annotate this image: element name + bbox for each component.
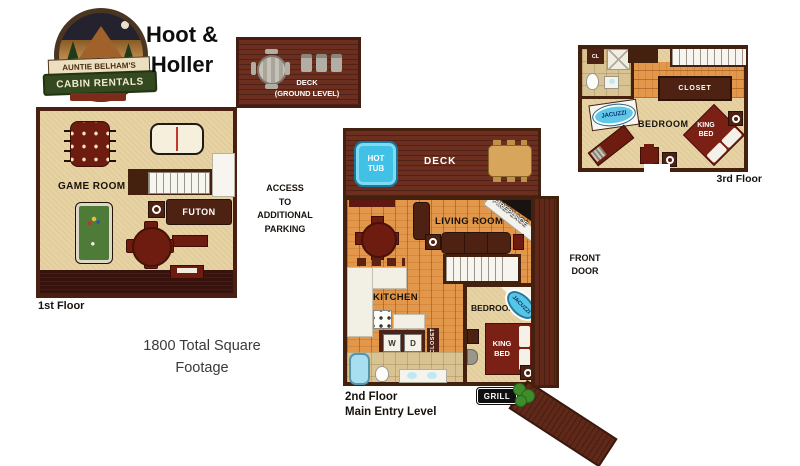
air-hockey-table-icon — [150, 123, 204, 155]
bench-seat — [177, 268, 197, 273]
lounge-chair-icon — [588, 125, 635, 167]
grill-icon: GRILL — [477, 388, 517, 404]
floor2-bedroom: BEDROOM JACUZZI KING BED — [463, 283, 537, 382]
sink-icon — [604, 76, 619, 89]
sink-icon — [427, 372, 437, 379]
foosball-rods-icon — [64, 126, 71, 162]
sink-basin — [609, 79, 615, 84]
chairs-row-icon — [493, 140, 527, 145]
floorplan-page: AUNTIE BELHAM'S CABIN RENTALS Hoot & Hol… — [0, 0, 800, 466]
deck-chair-icon — [331, 54, 342, 72]
toilet-icon — [375, 366, 389, 382]
floor2-jacuzzi-label: JACUZZI — [511, 295, 532, 316]
floor2-stairs-wall — [443, 254, 521, 284]
floor1-caption: 1st Floor — [38, 300, 84, 312]
chair-icon — [285, 62, 290, 75]
bedroom-chair-icon — [467, 349, 478, 365]
deck-dining-table-icon — [488, 145, 532, 177]
logo-ribbon — [70, 93, 126, 101]
table-top — [361, 222, 397, 258]
air-hockey-centerline — [176, 127, 178, 151]
foosball-table-icon — [70, 121, 110, 167]
futon-label: FUTON — [182, 207, 215, 217]
deck-chair-icon — [301, 54, 312, 72]
page-title: Hoot & Holler — [134, 20, 230, 79]
floor3-jacuzzi: JACUZZI — [588, 99, 639, 131]
toilet-icon — [586, 73, 599, 90]
end-table-icon — [513, 234, 524, 250]
floor2-closet: CLOSET — [427, 328, 439, 354]
kitchen-counter — [347, 267, 373, 337]
stairs-landing — [212, 153, 235, 197]
floor3-bedroom-label: BEDROOM — [638, 119, 689, 129]
floor3-plan: CL CLOSET JACUZZI BEDROOM KING BED — [578, 45, 748, 172]
lamp-icon — [429, 238, 437, 246]
dining-table-icon — [359, 220, 395, 256]
shower-icon — [607, 49, 630, 70]
stairs-icon — [670, 49, 746, 67]
kitchen-label: KITCHEN — [373, 292, 418, 303]
foosball-rods-icon — [109, 126, 116, 162]
floor3-caption: 3rd Floor — [700, 173, 762, 185]
bushes-icon — [513, 383, 539, 409]
floor2-deck-label: DECK — [424, 156, 456, 167]
deck-chair-icon — [316, 54, 327, 72]
floor3-jacuzzi-label: JACUZZI — [601, 110, 627, 119]
stairs-landing — [508, 257, 518, 281]
lamp-icon — [152, 205, 161, 214]
lamp-table-icon — [148, 201, 165, 218]
chair-icon — [251, 62, 256, 75]
bush — [515, 395, 527, 407]
washer-icon: W — [383, 334, 401, 352]
dryer-icon: D — [404, 334, 422, 352]
floor3-closet-label: CLOSET — [678, 85, 711, 92]
bar-stools-icon — [357, 258, 405, 266]
pillow-icon — [706, 142, 727, 163]
stairs-icon — [148, 172, 210, 194]
hot-tub-icon: HOT TUB — [354, 141, 398, 187]
grill-label: GRILL — [484, 392, 511, 401]
chair-icon — [265, 49, 278, 54]
floor3-closet: CLOSET — [658, 76, 732, 101]
square-footage-note: 1800 Total Square Footage — [118, 336, 286, 380]
moon-icon — [121, 21, 129, 29]
hot-tub-label: HOT TUB — [368, 154, 385, 175]
floor1-plan: GAME ROOM FUTON — [36, 107, 237, 298]
chairs-row-icon — [493, 177, 527, 182]
lamp-icon — [732, 115, 740, 123]
table-top — [132, 227, 172, 267]
vanity-icon — [399, 369, 447, 383]
couch-icon — [441, 232, 511, 254]
laundry-nook: W D — [379, 330, 425, 354]
bathtub-icon — [349, 353, 370, 385]
sink-icon — [407, 372, 417, 379]
floor3-king-bed-label: KING BED — [686, 122, 726, 140]
floor1-porch — [40, 270, 233, 294]
floor3-cl-label: CL — [592, 54, 599, 60]
floor3-wall-block — [628, 49, 658, 63]
small-table-icon — [640, 147, 659, 164]
front-porch — [531, 196, 559, 388]
stove-icon — [373, 310, 392, 329]
jacuzzi-icon: JACUZZI — [591, 101, 638, 129]
floor2-deck: HOT TUB DECK — [343, 128, 541, 199]
access-parking-note: ACCESS TO ADDITIONAL PARKING — [243, 182, 327, 236]
lamp-table-icon — [728, 111, 743, 126]
lamp-table-icon — [425, 234, 441, 250]
futon-icon: FUTON — [166, 199, 232, 225]
kitchen-sink-counter — [393, 314, 425, 329]
lounge-headrest — [590, 146, 606, 162]
floor2-closet-label: CLOSET — [430, 328, 436, 353]
floor2-plan: LIVING ROOM FIREPLACE KITCHEN W D CLOSET — [343, 196, 541, 386]
floor2-caption: 2nd Floor Main Entry Level — [345, 390, 436, 420]
nightstand-icon — [467, 329, 479, 344]
chair-icon — [644, 144, 654, 148]
pillow-icon — [519, 326, 530, 347]
lamp-icon — [666, 156, 674, 164]
floor2-king-bed-label: KING BED — [486, 324, 518, 374]
foosball-players-icon — [71, 122, 109, 166]
pool-table-icon — [76, 203, 112, 263]
ground-deck-label: DECK (GROUND LEVEL) — [261, 78, 353, 99]
floor3-bathroom: CL — [582, 49, 634, 99]
entry-bench-icon — [170, 265, 204, 279]
floor3-door-opening — [644, 164, 670, 173]
game-room-label: GAME ROOM — [58, 181, 126, 192]
tv-stand-icon — [172, 235, 208, 247]
front-door-label: FRONT DOOR — [560, 252, 610, 277]
ground-deck-plan: DECK (GROUND LEVEL) — [236, 37, 361, 108]
floor3-small-closet: CL — [587, 49, 604, 64]
hearth-shelf — [349, 200, 395, 207]
dining-table-icon — [130, 225, 170, 265]
stairs-icon — [446, 257, 508, 281]
